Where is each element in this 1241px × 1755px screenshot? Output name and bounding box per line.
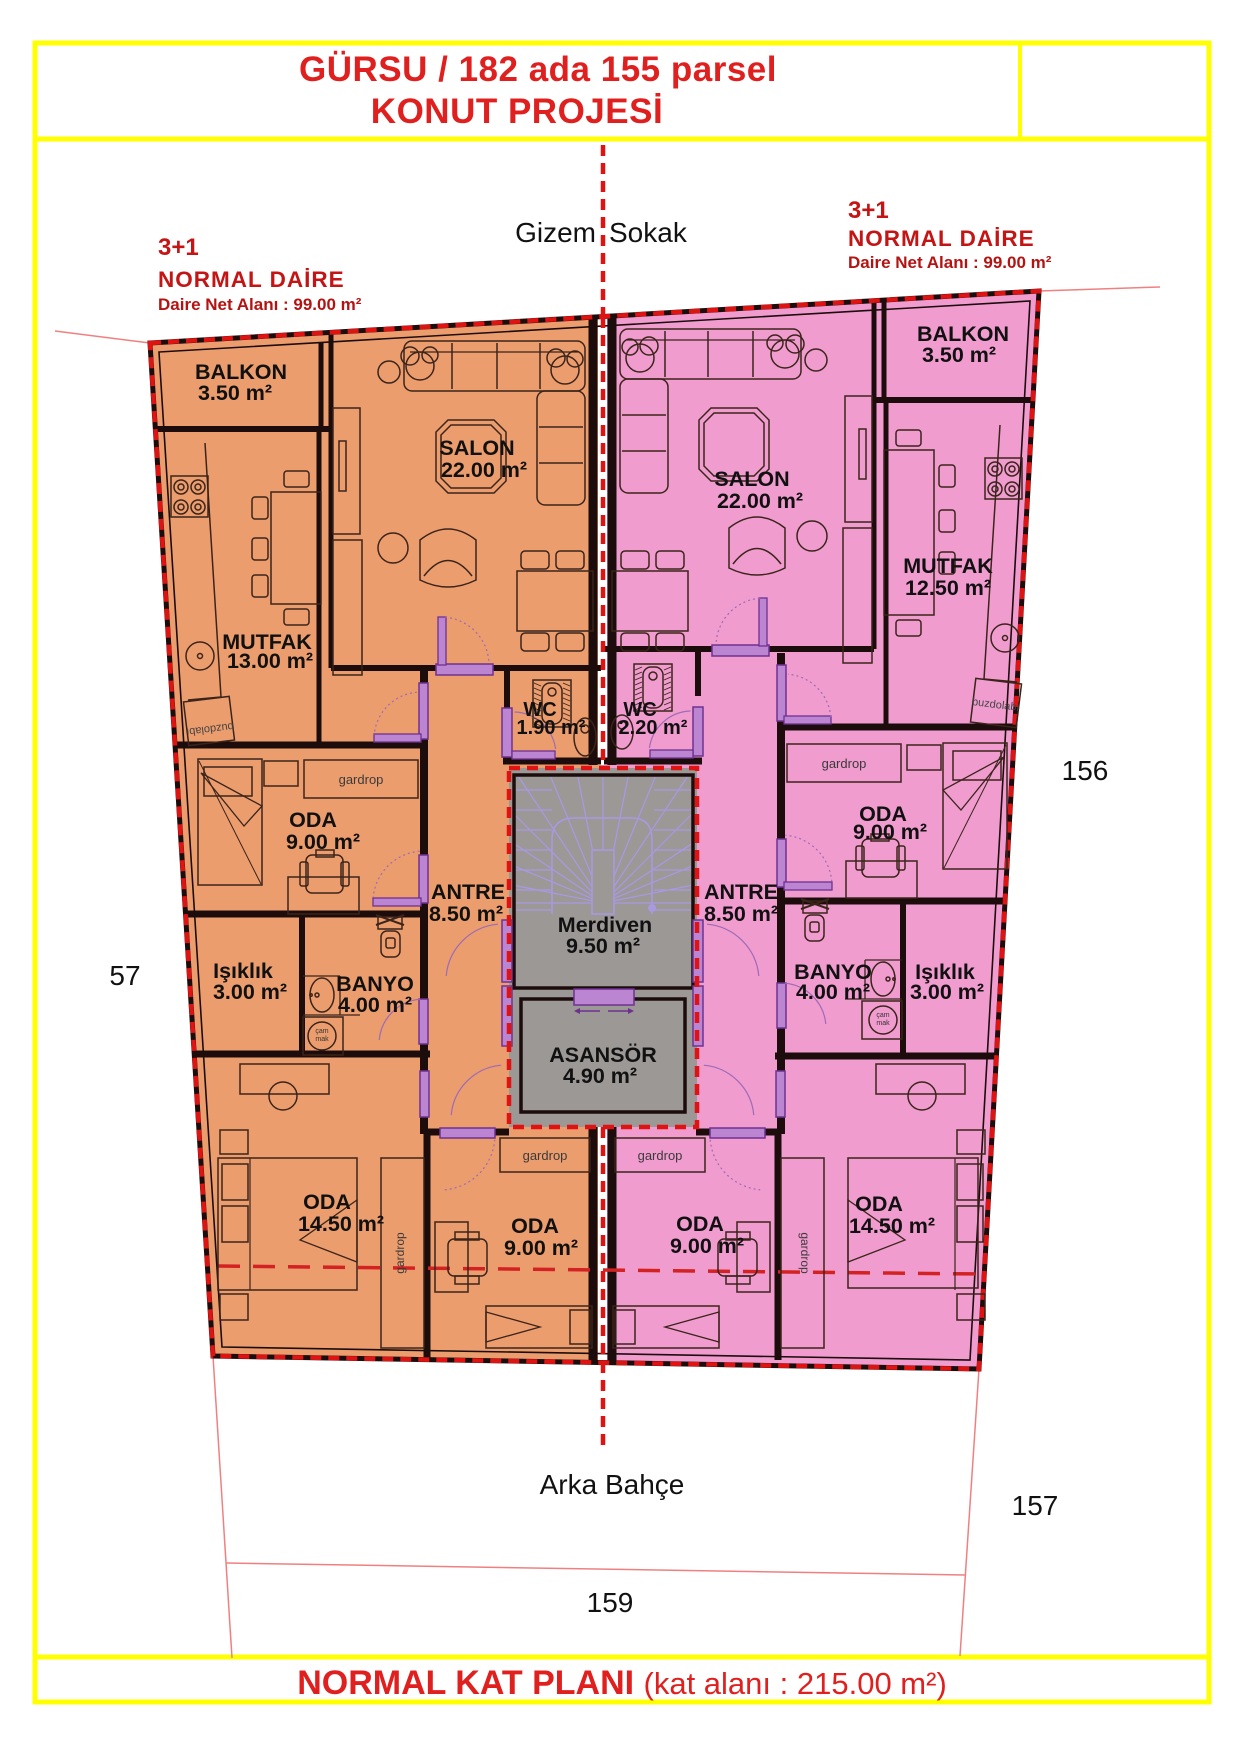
svg-text:9.00 m²: 9.00 m²: [504, 1236, 578, 1260]
svg-text:13.00 m²: 13.00 m²: [227, 649, 313, 673]
svg-text:9.00 m²: 9.00 m²: [670, 1234, 744, 1258]
svg-text:MUTFAK: MUTFAK: [903, 554, 993, 578]
svg-text:Arka Bahçe: Arka Bahçe: [540, 1469, 685, 1500]
svg-text:ODA: ODA: [855, 1192, 903, 1216]
svg-text:9.00 m²: 9.00 m²: [853, 820, 927, 844]
svg-text:156: 156: [1062, 755, 1109, 786]
svg-text:Gizem: Gizem: [515, 217, 596, 248]
svg-text:ODA: ODA: [289, 808, 337, 832]
svg-text:NORMAL DAİRE: NORMAL DAİRE: [158, 267, 345, 292]
svg-text:SALON: SALON: [714, 467, 789, 491]
svg-text:157: 157: [1012, 1490, 1059, 1521]
svg-text:3+1: 3+1: [848, 197, 889, 224]
svg-text:22.00 m²: 22.00 m²: [441, 458, 527, 482]
svg-text:NORMAL KAT PLANI (kat alanı :: NORMAL KAT PLANI (kat alanı : 215.00 m²): [297, 1664, 947, 1702]
svg-text:mak: mak: [876, 1020, 890, 1027]
svg-text:gardrop: gardrop: [638, 1148, 683, 1163]
svg-text:Sokak: Sokak: [609, 217, 688, 248]
svg-text:Daire Net Alanı : 99.00 m²: Daire Net Alanı : 99.00 m²: [848, 253, 1052, 272]
svg-text:4.90 m²: 4.90 m²: [563, 1064, 637, 1088]
svg-text:gardrop: gardrop: [822, 756, 867, 771]
svg-text:Daire Net Alanı : 99.00 m²: Daire Net Alanı : 99.00 m²: [158, 295, 362, 314]
svg-text:SALON: SALON: [439, 436, 514, 460]
svg-text:57: 57: [109, 960, 140, 991]
svg-text:3.00 m²: 3.00 m²: [910, 980, 984, 1004]
svg-text:3+1: 3+1: [158, 234, 199, 261]
svg-text:çam: çam: [315, 1028, 328, 1035]
svg-text:9.00 m²: 9.00 m²: [286, 830, 360, 854]
svg-text:14.50 m²: 14.50 m²: [849, 1214, 935, 1238]
svg-text:ODA: ODA: [676, 1212, 724, 1236]
svg-text:gardrop: gardrop: [339, 772, 384, 787]
svg-text:gardrop: gardrop: [393, 1232, 407, 1274]
svg-text:KONUT PROJESİ: KONUT PROJESİ: [371, 92, 663, 131]
svg-text:12.50 m²: 12.50 m²: [905, 576, 991, 600]
svg-text:9.50 m²: 9.50 m²: [566, 934, 640, 958]
svg-text:ANTRE: ANTRE: [431, 880, 505, 904]
svg-text:ODA: ODA: [303, 1190, 351, 1214]
svg-text:1.90 m²: 1.90 m²: [517, 717, 586, 739]
svg-text:14.50 m²: 14.50 m²: [298, 1212, 384, 1236]
svg-text:4.00 m²: 4.00 m²: [796, 980, 870, 1004]
svg-text:2.20 m²: 2.20 m²: [619, 717, 688, 739]
svg-text:ODA: ODA: [511, 1214, 559, 1238]
svg-text:22.00 m²: 22.00 m²: [717, 489, 803, 513]
svg-text:8.50 m²: 8.50 m²: [704, 902, 778, 926]
svg-text:mak: mak: [315, 1036, 329, 1043]
svg-text:NORMAL DAİRE: NORMAL DAİRE: [848, 226, 1035, 251]
svg-text:159: 159: [587, 1587, 634, 1618]
svg-text:gardrop: gardrop: [523, 1148, 568, 1163]
svg-text:8.50 m²: 8.50 m²: [429, 902, 503, 926]
svg-text:4.00 m²: 4.00 m²: [338, 993, 412, 1017]
svg-text:3.50 m²: 3.50 m²: [922, 343, 996, 367]
svg-text:çam: çam: [876, 1012, 889, 1019]
svg-text:3.00 m²: 3.00 m²: [213, 980, 287, 1004]
svg-text:GÜRSU / 182 ada 155 parsel: GÜRSU / 182 ada 155 parsel: [299, 50, 777, 89]
svg-text:ANTRE: ANTRE: [704, 880, 778, 904]
svg-text:3.50 m²: 3.50 m²: [198, 381, 272, 405]
svg-text:gardrop: gardrop: [798, 1232, 812, 1274]
